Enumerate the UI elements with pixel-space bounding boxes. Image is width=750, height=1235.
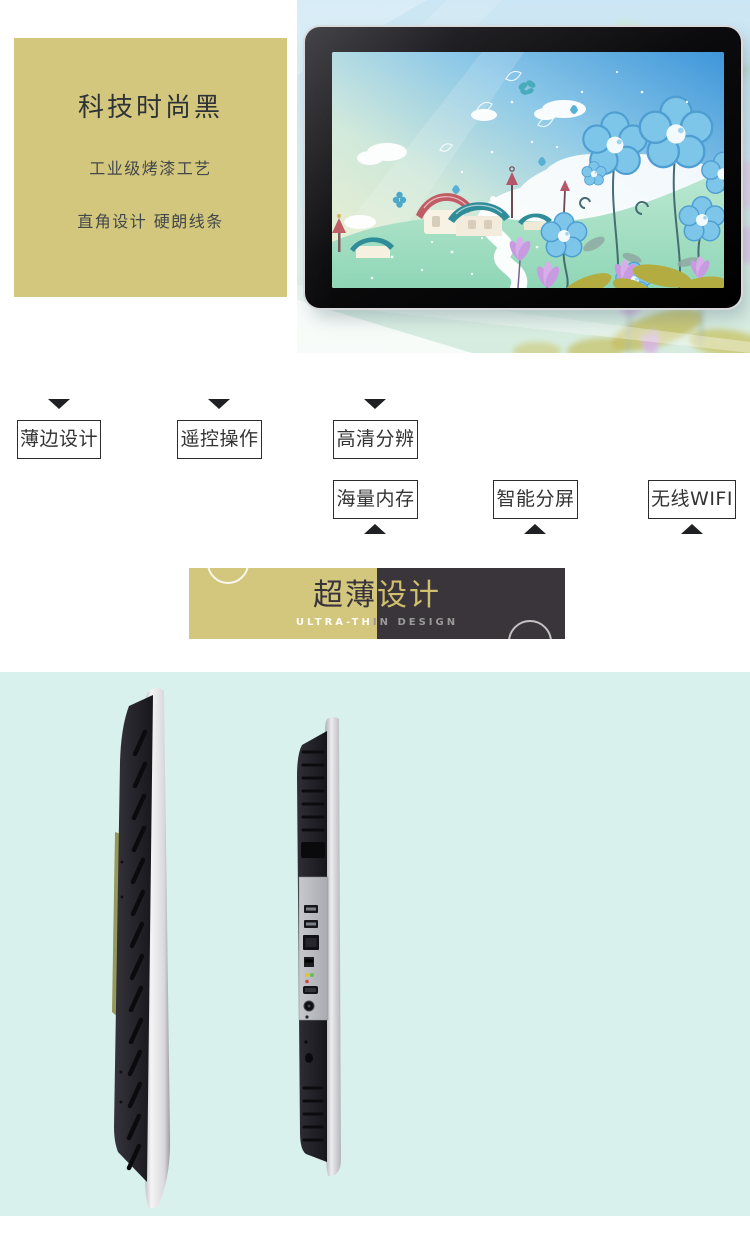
banner-title-dark-part: 超薄 xyxy=(313,578,377,613)
speaker-cutout xyxy=(301,842,325,858)
feature-label: 智能分屏 xyxy=(496,488,574,510)
feature-box-remote-control: 遥控操作 xyxy=(177,420,262,459)
floating-petals xyxy=(393,71,688,208)
hero-subtitle-2: 直角设计 硬朗线条 xyxy=(14,179,287,232)
screen-wallpaper-cartoon-landscape xyxy=(332,52,724,288)
feature-box-wireless-wifi: 无线WIFI xyxy=(648,480,736,519)
feature-label: 薄边设计 xyxy=(20,428,98,450)
led-indicator xyxy=(310,973,314,977)
device-side-view-angled xyxy=(96,682,180,1210)
feature-label: 遥控操作 xyxy=(180,428,258,450)
banner-title: 超薄设计 xyxy=(189,580,565,612)
led-indicator xyxy=(305,980,309,984)
banner-title-gold-part: 设计 xyxy=(377,578,441,613)
feature-label: 海量内存 xyxy=(336,488,414,510)
hero-product-image xyxy=(297,0,750,353)
monitor-front-view xyxy=(305,27,741,308)
feature-label: 高清分辨 xyxy=(336,428,414,450)
banner-subtitle-gray-part: IN DESIGN xyxy=(373,617,458,628)
flower-stems xyxy=(564,150,701,288)
monitor-screen xyxy=(332,52,724,288)
triangle-down-icon xyxy=(48,399,70,409)
banner-subtitle-light-part: ULTRA-TH xyxy=(296,617,373,628)
feature-box-mass-storage: 海量内存 xyxy=(333,480,418,519)
hero-title: 科技时尚黑 xyxy=(14,38,287,124)
triangle-down-icon xyxy=(364,399,386,409)
triangle-up-icon xyxy=(681,524,703,534)
banner-subtitle: ULTRA-THIN DESIGN xyxy=(189,617,565,629)
thin-body-section: 纤薄机身 高保真效果 实现简约而不简单的模组结构 画质优美 更加方便快捷 THI… xyxy=(0,672,750,1216)
feature-label: 无线WIFI xyxy=(651,488,733,510)
feature-box-thin-edge: 薄边设计 xyxy=(17,420,101,459)
triangle-up-icon xyxy=(524,524,546,534)
ultra-thin-banner: 超薄设计 ULTRA-THIN DESIGN xyxy=(189,568,565,639)
product-detail-page: 科技时尚黑 工业级烤漆工艺 直角设计 硬朗线条 xyxy=(0,0,750,1235)
hero-subtitle-1: 工业级烤漆工艺 xyxy=(14,124,287,179)
triangle-up-icon xyxy=(364,524,386,534)
olive-leaves xyxy=(560,260,724,288)
led-indicator xyxy=(305,973,309,977)
feature-box-hd-resolution: 高清分辨 xyxy=(333,420,418,459)
triangle-down-icon xyxy=(208,399,230,409)
cartoon-houses xyxy=(332,167,570,258)
feature-box-smart-splitscreen: 智能分屏 xyxy=(493,480,578,519)
vent-slots-top xyxy=(303,752,323,830)
hero-text-panel: 科技时尚黑 工业级烤漆工艺 直角设计 硬朗线条 xyxy=(14,38,287,297)
device-side-view-ports xyxy=(290,712,348,1180)
